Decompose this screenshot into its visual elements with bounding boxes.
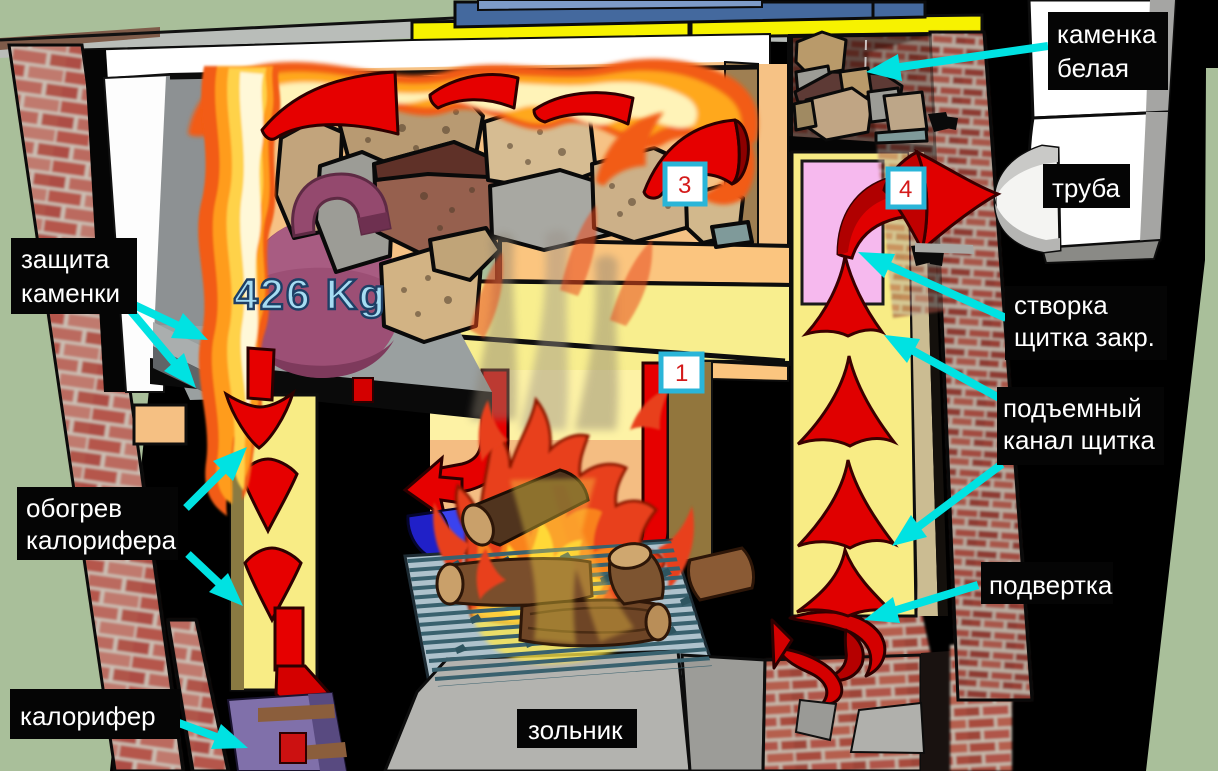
svg-text:3: 3 <box>678 172 691 199</box>
svg-text:подъемный: подъемный <box>1003 393 1142 423</box>
svg-text:1: 1 <box>675 360 688 387</box>
svg-text:зольник: зольник <box>528 715 623 745</box>
svg-text:калорифера: калорифера <box>26 525 177 555</box>
svg-text:канал щитка: канал щитка <box>1003 425 1155 455</box>
svg-text:створка: створка <box>1014 290 1108 320</box>
svg-text:белая: белая <box>1057 53 1129 83</box>
svg-text:426 Kg: 426 Kg <box>234 271 387 319</box>
svg-text:труба: труба <box>1052 173 1121 203</box>
svg-text:подвертка: подвертка <box>989 570 1113 600</box>
svg-text:каменки: каменки <box>21 278 120 308</box>
svg-text:каменка: каменка <box>1057 19 1157 49</box>
svg-text:защита: защита <box>21 244 110 274</box>
svg-text:щитка закр.: щитка закр. <box>1014 322 1155 352</box>
svg-text:обогрев: обогрев <box>26 493 122 523</box>
svg-text:4: 4 <box>899 176 912 203</box>
svg-text:калорифер: калорифер <box>20 701 156 731</box>
